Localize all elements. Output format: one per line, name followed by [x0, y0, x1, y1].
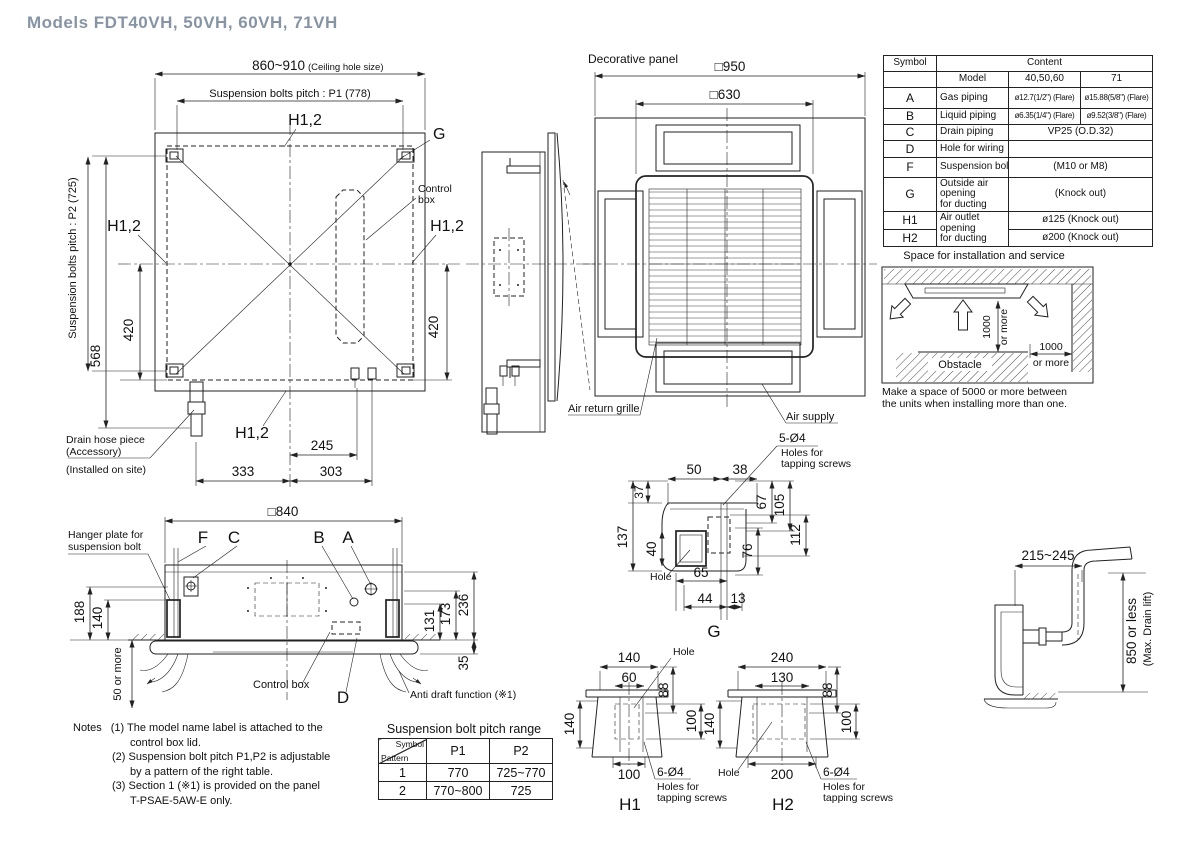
- dim-236: 236: [456, 594, 471, 617]
- dim-173: 173: [438, 603, 453, 626]
- side-view: [466, 133, 600, 434]
- drain-dim-850: 850 or less: [1124, 598, 1139, 664]
- symtab-f-sym: F: [884, 158, 937, 178]
- h2-dim-240: 240: [771, 650, 794, 665]
- note-2b: by a pattern of the right table.: [73, 765, 330, 780]
- label-d: D: [337, 688, 349, 707]
- elevation-view: □840 188 140 50 or more 131 173 236 35 F: [68, 504, 516, 708]
- pitch-range-table: Symbol Pattern P1 P2 1 770 725~770 2 770…: [378, 738, 553, 800]
- space-dim-h1000b: or more: [1033, 357, 1069, 369]
- notes-label: Notes: [73, 721, 102, 736]
- h1-dim-88: 88: [656, 682, 671, 697]
- symtab-header-content: Content: [937, 56, 1153, 72]
- dim-188: 188: [72, 601, 87, 624]
- symtab-d-value: [1009, 141, 1153, 158]
- control-box-elev-label: Control box: [253, 679, 310, 691]
- dim-140: 140: [90, 607, 105, 630]
- symtab-h1-value: ø125 (Knock out): [1009, 212, 1153, 230]
- pitch-h-p2: P2: [490, 739, 553, 764]
- symtab-b-name: Liquid piping: [937, 109, 1009, 125]
- dim-35: 35: [456, 655, 471, 670]
- label-f: F: [198, 528, 208, 547]
- notes-block: Notes (1) The model name label is attach…: [73, 721, 330, 809]
- symtab-g-name2: for ducting: [940, 200, 1005, 211]
- h2-dim-130: 130: [771, 670, 794, 685]
- pitch-r2-pattern: 2: [379, 782, 427, 800]
- symtab-g-sym: G: [884, 178, 937, 212]
- symtab-d-sym: D: [884, 141, 937, 158]
- dim-630: □630: [710, 87, 741, 102]
- symtab-a-name: Gas piping: [937, 88, 1009, 109]
- dim-303: 303: [320, 464, 343, 479]
- h2-dim-100r: 100: [839, 711, 854, 734]
- h2-dim-200: 200: [771, 767, 794, 782]
- air-return-grille-label: Air return grille: [568, 403, 640, 415]
- label-b: B: [313, 528, 324, 547]
- space-note1: Make a space of 5000 or more between: [882, 386, 1067, 398]
- h1-detail-title: H1: [619, 795, 641, 814]
- h12-label-bottom: H1,2: [235, 425, 269, 442]
- g-dim-40: 40: [644, 541, 659, 556]
- space-dim-h1000: 1000: [1039, 341, 1063, 353]
- pitch-diag-cell: Symbol Pattern: [379, 739, 427, 764]
- g-dim-50: 50: [686, 462, 701, 477]
- symtab-h2-value: ø200 (Knock out): [1009, 230, 1153, 247]
- g-dim-67: 67: [754, 494, 769, 509]
- symtab-header-symbol: Symbol: [884, 56, 937, 72]
- symtab-c-value: VP25 (O.D.32): [1009, 125, 1153, 141]
- symbol-content-table: Symbol Content Model 40,50,60 71 A Gas p…: [883, 55, 1153, 247]
- h1-screws-label3: tapping screws: [657, 792, 727, 804]
- symtab-header-model: Model: [937, 72, 1009, 88]
- g-screws-label3: tapping screws: [781, 458, 851, 470]
- g-dim-137: 137: [615, 526, 630, 549]
- symtab-header-m2: 71: [1081, 72, 1153, 88]
- h2-detail-title: H2: [772, 795, 794, 814]
- label-a: A: [342, 528, 354, 547]
- h1-hole-label: Hole: [673, 646, 695, 658]
- dim-p1: Suspension bolts pitch : P1 (778): [209, 88, 370, 100]
- pitch-r2-p2: 725: [490, 782, 553, 800]
- symtab-g-name: Outside air opening for ducting: [937, 178, 1009, 212]
- symtab-h-name: Air outlet opening for ducting: [937, 212, 1009, 247]
- pitch-h-pattern: Pattern: [381, 753, 408, 763]
- h12-label-left: H1,2: [107, 218, 141, 235]
- symtab-h-name2: for ducting: [940, 234, 1005, 245]
- g-dim-44: 44: [697, 591, 713, 606]
- symtab-f-value: (M10 or M8): [1009, 158, 1153, 178]
- dim-ceiling-hole-note: (Ceiling hole size): [308, 62, 384, 73]
- dim-245: 245: [311, 438, 334, 453]
- note-1a: (1) The model name label is attached to …: [111, 721, 323, 736]
- pitch-r1-pattern: 1: [379, 764, 427, 782]
- space-note2: the units when installing more than one.: [882, 398, 1067, 410]
- dim-568: 568: [88, 345, 103, 368]
- plan-view: Control box G H1,2 H1,2 H1,2 H1,2 860~91…: [66, 58, 464, 490]
- g-dim-112: 112: [788, 524, 803, 546]
- g-detail-title: G: [707, 622, 720, 641]
- symtab-d-name: Hole for wiring: [937, 141, 1009, 158]
- h2-hole-detail: 240 130 88 100 140 200 Hole 6-Ø4 Holes f…: [702, 650, 893, 814]
- h1-dim-100b: 100: [618, 767, 641, 782]
- g-dim-38: 38: [732, 462, 747, 477]
- pitch-r1-p1: 770: [427, 764, 490, 782]
- symtab-b-sym: B: [884, 109, 937, 125]
- h12-label-right: H1,2: [430, 218, 464, 235]
- installation-space-diagram: Space for installation and service Obsta…: [882, 250, 1093, 410]
- g-hole-label: Hole: [650, 571, 672, 583]
- g-screws-label: 5-Ø4: [779, 431, 806, 445]
- h2-screws-label: 6-Ø4: [823, 765, 850, 779]
- h2-dim-88: 88: [820, 682, 835, 697]
- symtab-c-sym: C: [884, 125, 937, 141]
- h1-screws-label: 6-Ø4: [657, 765, 684, 779]
- note-3a: (3) Section 1 (※1) is provided on the pa…: [73, 779, 330, 794]
- pitch-h-p1: P1: [427, 739, 490, 764]
- note-2a: (2) Suspension bolt pitch P1,P2 is adjus…: [73, 750, 330, 765]
- pitch-r1-p2: 725~770: [490, 764, 553, 782]
- h1-dim-100r: 100: [684, 710, 699, 733]
- h2-screws-label3: tapping screws: [823, 792, 893, 804]
- symtab-b-v2: ø9.52(3/8") (Flare): [1081, 109, 1153, 125]
- dim-950: □950: [715, 59, 746, 74]
- g-dim-65: 65: [693, 565, 708, 580]
- space-dim-v1000: 1000: [981, 315, 993, 339]
- drawing-sheet: Models FDT40VH, 50VH, 60VH, 71VH Control…: [0, 0, 1200, 849]
- decorative-panel-view: Decorative panel □950 □630 Air return gr…: [568, 52, 877, 423]
- symtab-g-value: (Knock out): [1009, 178, 1153, 212]
- h2-dim-140l: 140: [702, 713, 717, 736]
- dim-840: □840: [268, 504, 299, 519]
- drain-hose-label2: (Accessory): [66, 446, 121, 458]
- symtab-g-name1: Outside air opening: [940, 179, 1005, 200]
- symtab-f-name: Suspension bolts: [937, 158, 1009, 178]
- dim-420-right: 420: [426, 316, 441, 339]
- dim-420-left: 420: [121, 319, 136, 342]
- symtab-a-sym: A: [884, 88, 937, 109]
- pitch-r2-p1: 770~800: [427, 782, 490, 800]
- control-box-label2: box: [418, 194, 436, 206]
- symtab-h1-sym: H1: [884, 212, 937, 230]
- dim-p2: Suspension bolts pitch : P2 (725): [67, 177, 79, 338]
- g-knockout-label: G: [433, 126, 445, 143]
- anti-draft-label: Anti draft function (※1): [410, 689, 516, 701]
- hanger-plate-label: Hanger plate for: [68, 529, 144, 541]
- symtab-h2-sym: H2: [884, 230, 937, 247]
- h1-dim-140t: 140: [618, 650, 641, 665]
- g-hole-detail: 50 38 37 137 40 67 105 112 76 65 44 13 H…: [615, 431, 851, 641]
- symtab-h-name1: Air outlet opening: [940, 213, 1005, 234]
- symtab-a-v2: ø15.88(5/8") (Flare): [1081, 88, 1153, 109]
- g-dim-37: 37: [632, 485, 646, 499]
- drain-hose-label: Drain hose piece: [66, 434, 145, 446]
- space-title: Space for installation and service: [903, 250, 1064, 262]
- drain-dim-850-note: (Max. Drain lift): [1142, 592, 1154, 667]
- space-dim-v1000b: or more: [998, 309, 1010, 345]
- h2-hole-label: Hole: [718, 767, 740, 779]
- dim-131: 131: [422, 610, 437, 633]
- hanger-plate-label2: suspension bolt: [68, 541, 141, 553]
- pitch-table-title: Suspension bolt pitch range: [378, 722, 550, 736]
- label-c: C: [228, 528, 240, 547]
- drain-lift-diagram: 215~245 850 or less (Max. Drain lift): [984, 547, 1154, 708]
- g-dim-76: 76: [740, 543, 755, 558]
- dim-50-or-more: 50 or more: [112, 647, 124, 700]
- decorative-panel-title: Decorative panel: [588, 52, 678, 66]
- symtab-b-v1: ø6.35(1/4") (Flare): [1009, 109, 1081, 125]
- note-3b: T-PSAE-5AW-E only.: [73, 794, 330, 809]
- h1-dim-140l: 140: [562, 713, 577, 736]
- g-dim-13: 13: [730, 591, 745, 606]
- note-1b: control box lid.: [73, 736, 330, 751]
- dim-ceiling-hole: 860~910: [252, 58, 305, 73]
- drain-hose-label3: (Installed on site): [66, 464, 146, 476]
- obstacle-label: Obstacle: [938, 359, 981, 371]
- pitch-h-symbol: Symbol: [396, 739, 424, 749]
- symtab-header-m1: 40,50,60: [1009, 72, 1081, 88]
- dim-333: 333: [232, 464, 255, 479]
- h1-dim-60: 60: [621, 670, 636, 685]
- symtab-a-v1: ø12.7(1/2") (Flare): [1009, 88, 1081, 109]
- g-dim-105: 105: [772, 494, 787, 517]
- drain-dim-215-245: 215~245: [1022, 548, 1075, 563]
- air-supply-label: Air supply: [786, 411, 835, 423]
- h12-label-top: H1,2: [288, 112, 322, 129]
- symtab-c-name: Drain piping: [937, 125, 1009, 141]
